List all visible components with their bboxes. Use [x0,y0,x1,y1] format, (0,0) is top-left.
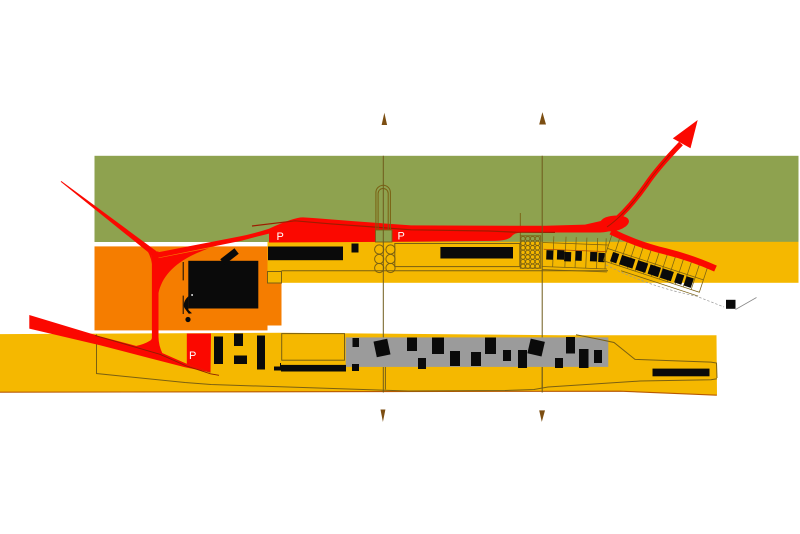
svg-text:P: P [189,350,196,362]
svg-text:P: P [398,230,405,242]
svg-text:P: P [277,231,284,243]
